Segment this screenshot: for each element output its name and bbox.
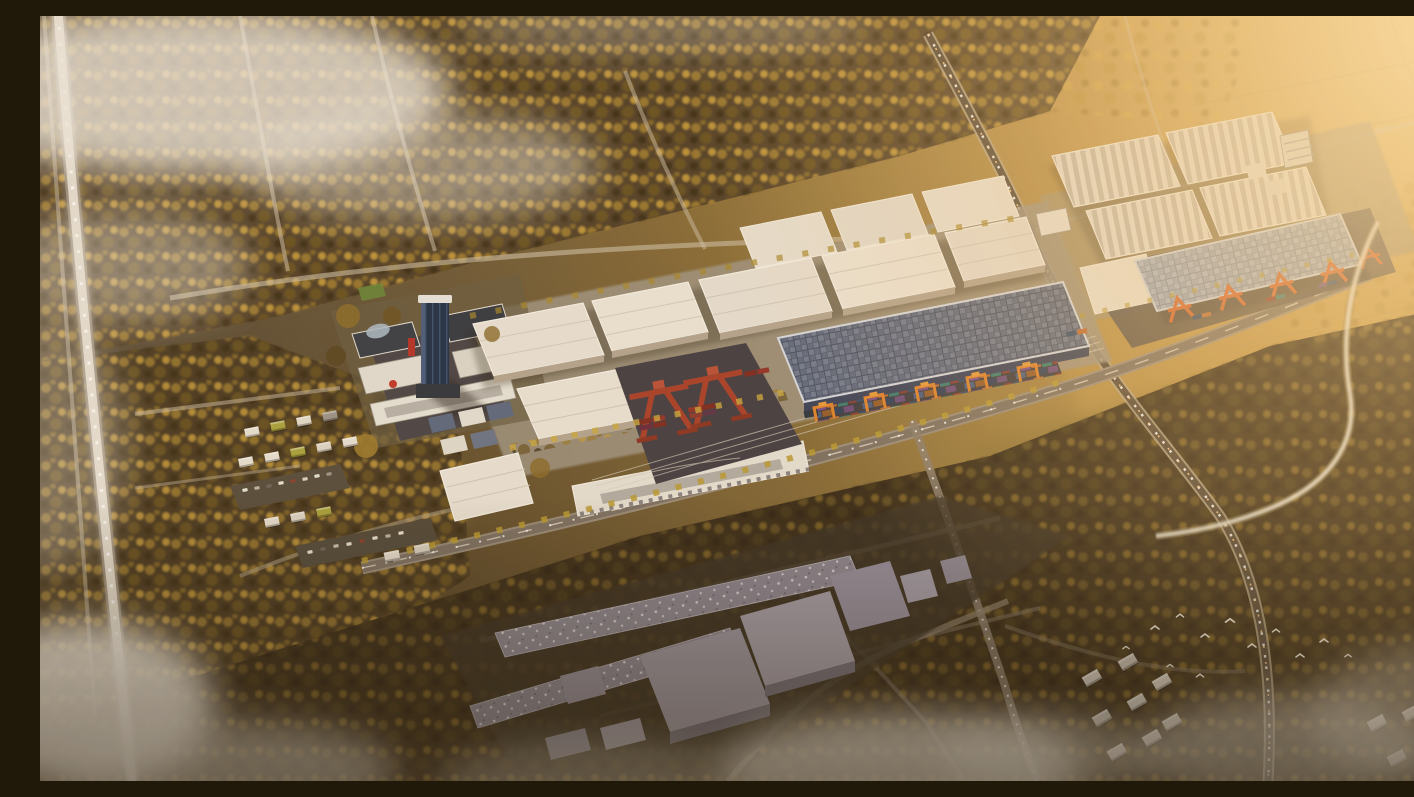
aerial-render: Golden-hour aerial rendering of a logist… [40, 16, 1414, 781]
warm-tint [40, 16, 1414, 781]
atmosphere [40, 16, 1414, 781]
scene-canvas [40, 16, 1414, 781]
